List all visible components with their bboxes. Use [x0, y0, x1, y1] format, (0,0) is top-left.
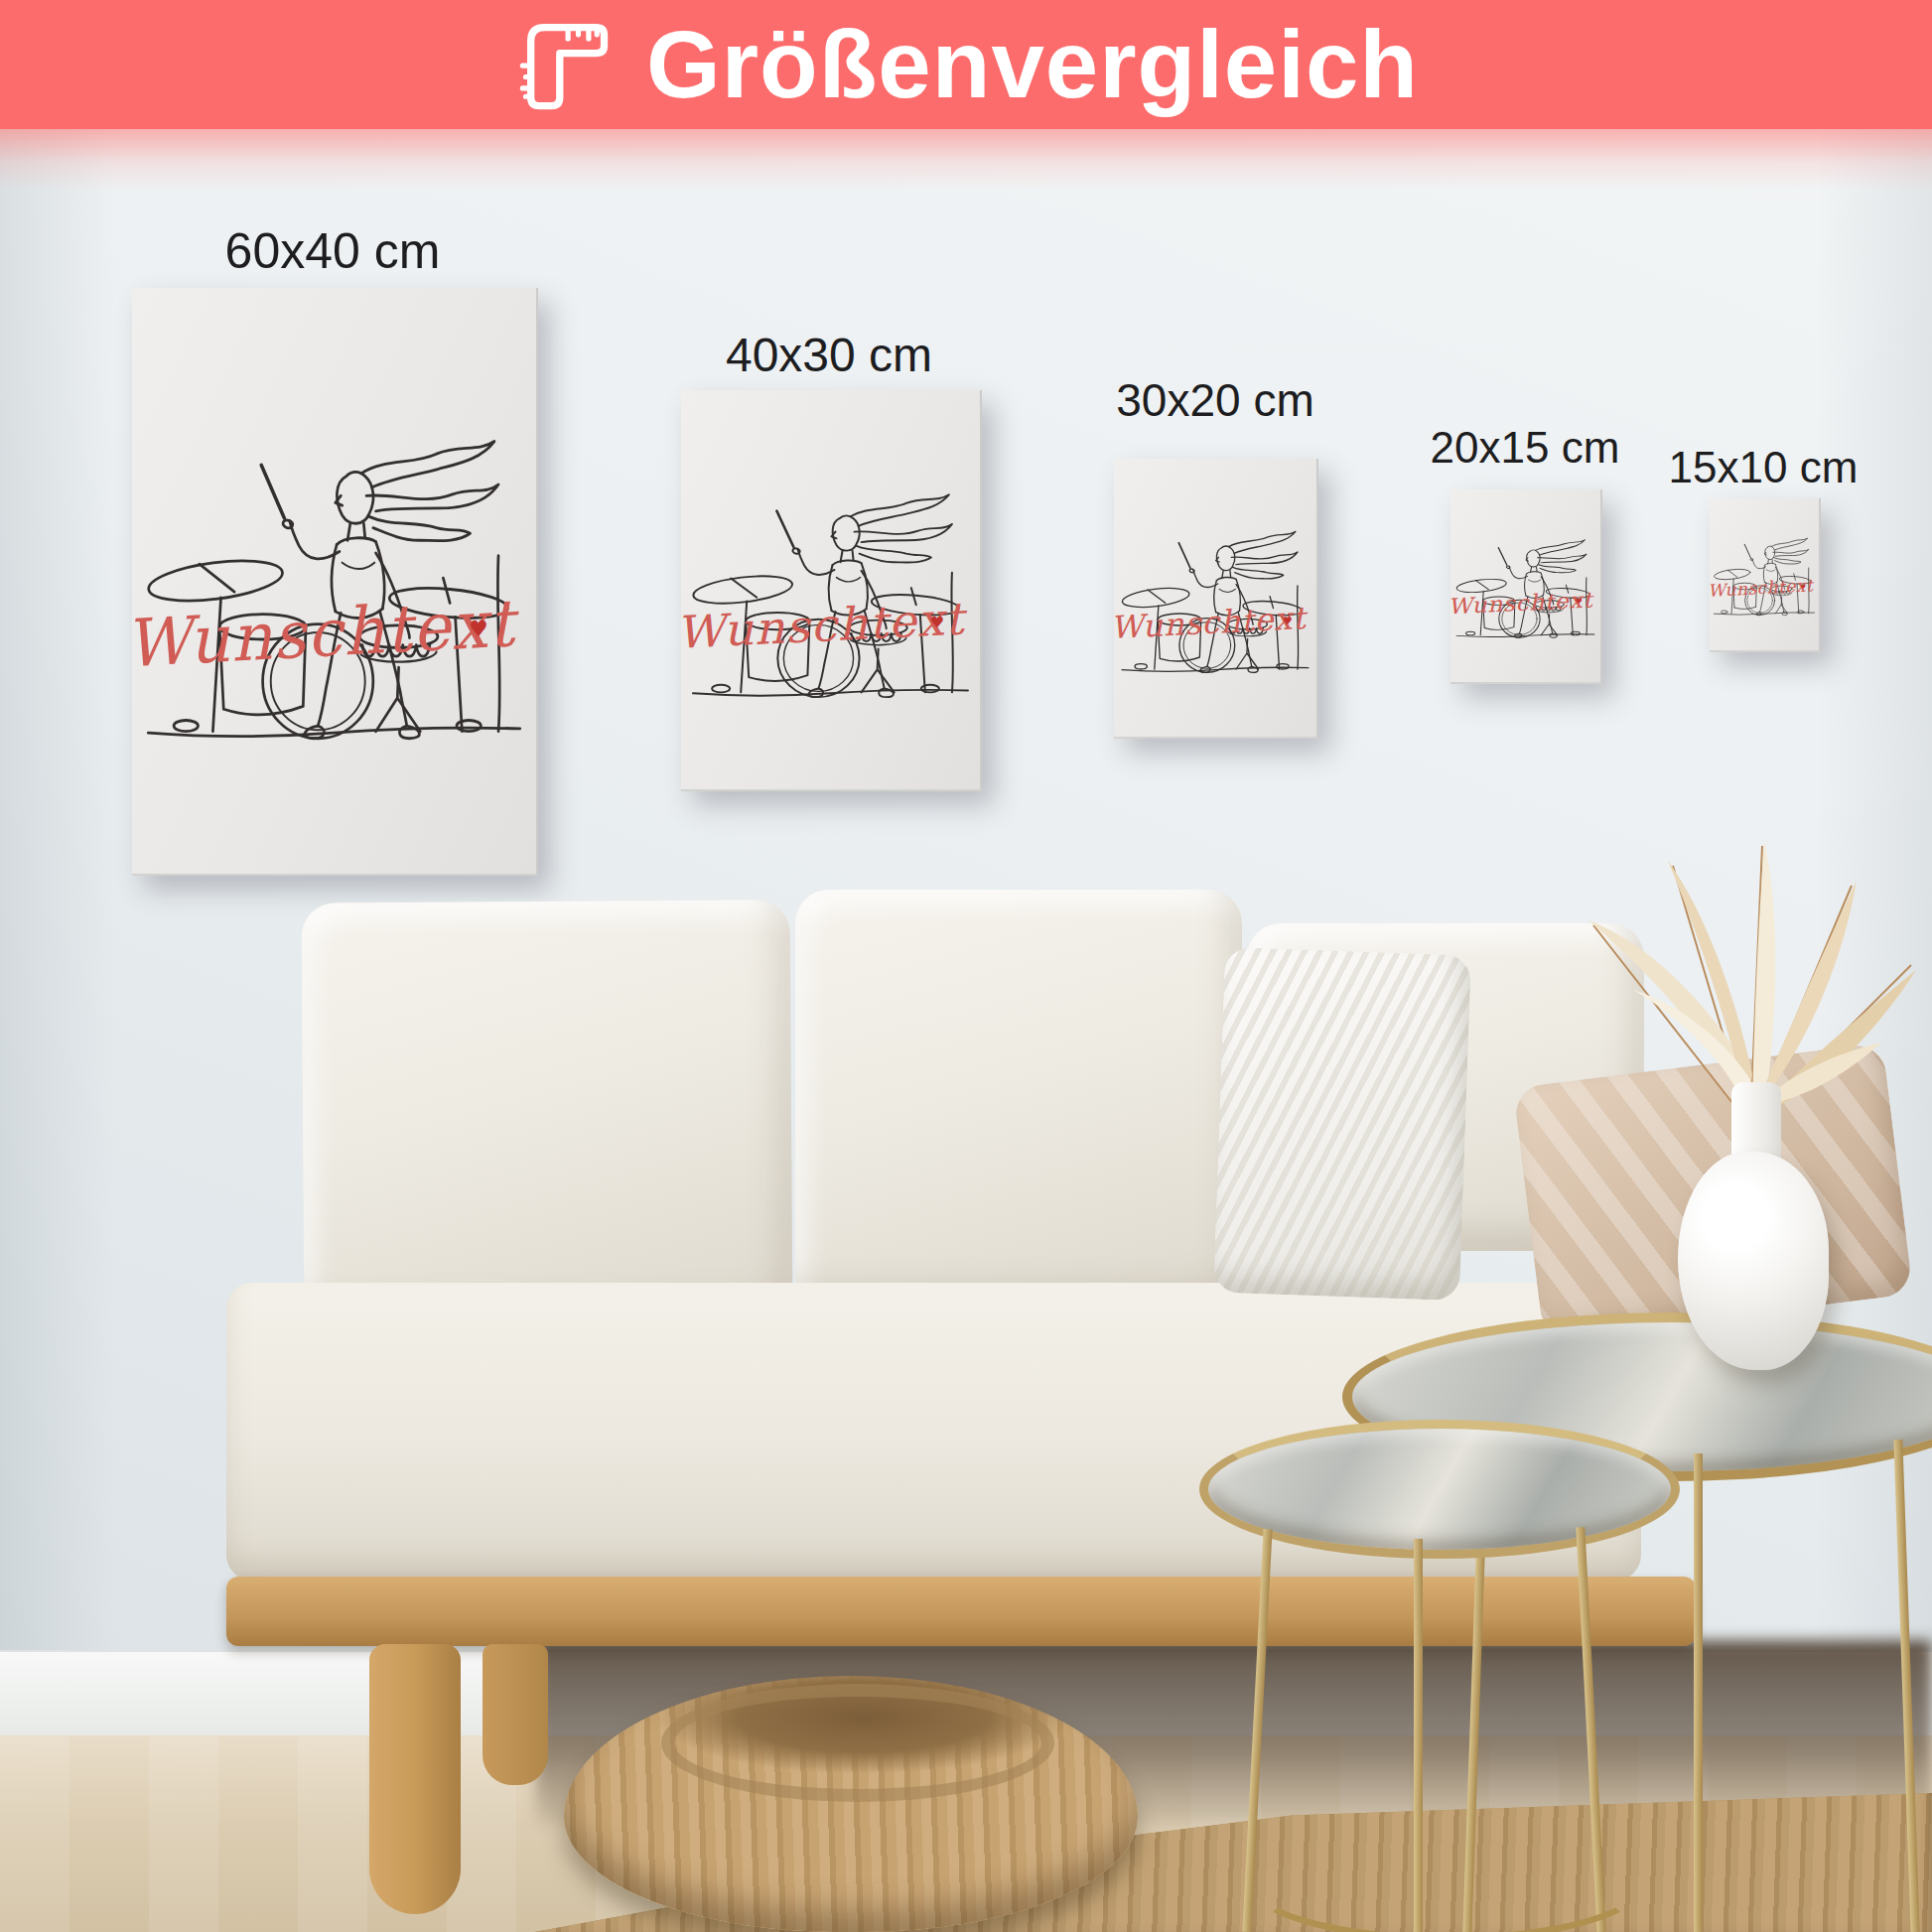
size-label-20x15: 20x15 cm: [1398, 423, 1652, 473]
ruler-icon: [513, 13, 617, 116]
header-banner: Größenvergleich: [0, 0, 1932, 129]
custom-text: Wunschtext: [132, 585, 522, 682]
drummer-line-art: Wunschtext ♥: [132, 288, 536, 874]
page-title: Größenvergleich: [646, 10, 1419, 119]
sofa-back-cushion-left: [302, 899, 793, 1323]
size-label-15x10: 15x10 cm: [1640, 443, 1886, 492]
poster-20x15: Wunschtext ♥: [1450, 489, 1602, 684]
heart-icon: ♥: [1801, 584, 1806, 590]
size-label-60x40: 60x40 cm: [129, 222, 536, 280]
heart-icon: ♥: [930, 614, 944, 632]
dried-leaves: [1534, 806, 1931, 1134]
poster-15x10: Wunschtext ♥: [1710, 498, 1821, 652]
custom-text: Wunschtext: [1450, 587, 1595, 619]
sofa-leg-back: [483, 1644, 548, 1785]
custom-text: Wunschtext: [1710, 575, 1815, 601]
drummer-line-art: Wunschtext ♥: [1450, 489, 1600, 682]
sofa-back-cushion-right: [795, 890, 1242, 1307]
poster-30x20: Wunschtext ♥: [1114, 459, 1318, 739]
sofa-leg-front: [369, 1644, 461, 1914]
drummer-line-art: Wunschtext ♥: [1114, 459, 1316, 737]
table-leg: [1694, 1453, 1703, 1932]
custom-text: Wunschtext: [681, 592, 969, 658]
poster-40x30: Wunschtext ♥: [681, 390, 982, 791]
white-vase: [1678, 1152, 1829, 1370]
heart-icon: ♥: [1283, 615, 1293, 627]
heart-icon: ♥: [469, 616, 487, 641]
size-comparison-product-image: Größenvergleich 60x40 cm 40x30 cm 30x20 …: [0, 0, 1932, 1932]
poster-60x40: Wunschtext ♥: [132, 288, 538, 876]
table-base-ring: [1243, 1817, 1650, 1932]
heart-icon: ♥: [1576, 598, 1583, 607]
drummer-line-art: Wunschtext ♥: [681, 390, 980, 789]
size-label-40x30: 40x30 cm: [675, 328, 983, 382]
size-label-30x20: 30x20 cm: [1104, 373, 1326, 427]
drummer-line-art: Wunschtext ♥: [1710, 498, 1819, 650]
header-glow: [0, 129, 1932, 191]
white-knit-pillow: [1213, 947, 1471, 1301]
